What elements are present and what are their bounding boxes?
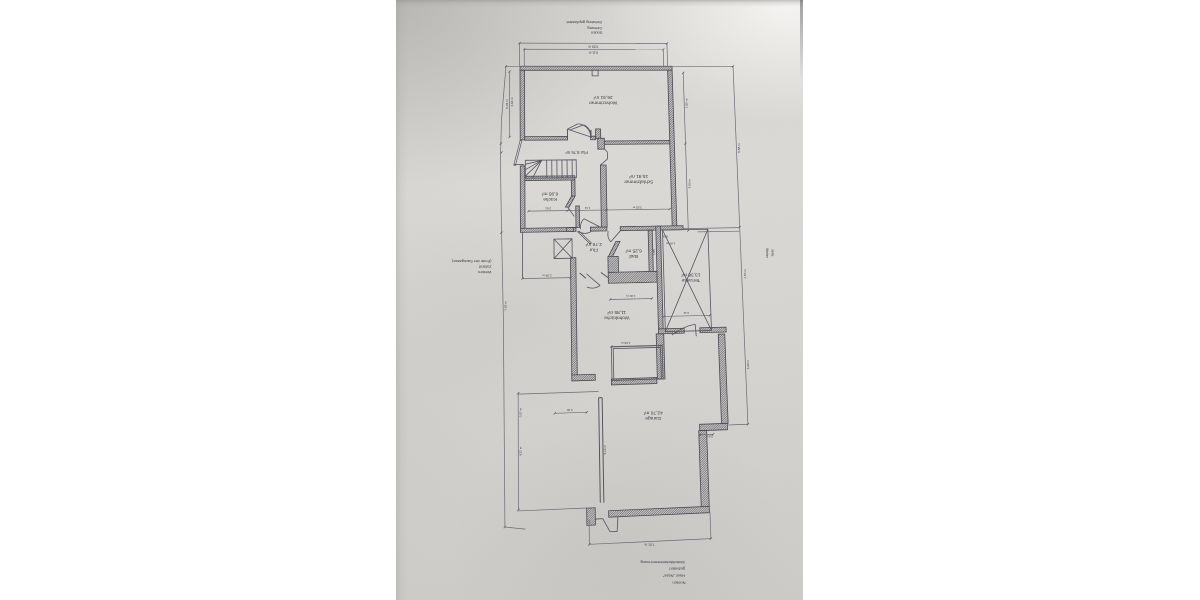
svg-text:4,53 m: 4,53 m bbox=[687, 179, 691, 189]
svg-text:4,22 m: 4,22 m bbox=[518, 446, 522, 456]
svg-text:Schlafzimmer: Schlafzimmer bbox=[624, 179, 654, 185]
svg-text:0,36: 0,36 bbox=[662, 235, 668, 239]
svg-text:3,92 m: 3,92 m bbox=[632, 205, 642, 209]
svg-text:Westen: Westen bbox=[478, 270, 492, 275]
svg-text:6,95 m²: 6,95 m² bbox=[541, 191, 558, 197]
svg-text:26,91 m²: 26,91 m² bbox=[593, 94, 613, 100]
svg-text:Terrasse: Terrasse bbox=[681, 277, 700, 283]
svg-text:Süden: Süden bbox=[591, 31, 603, 36]
svg-text:3,99 m: 3,99 m bbox=[746, 359, 750, 369]
svg-text:Gehweg: Gehweg bbox=[587, 26, 602, 31]
svg-text:Bad: Bad bbox=[629, 253, 638, 259]
svg-text:3,66 m: 3,66 m bbox=[510, 97, 514, 107]
svg-text:42,76 m²: 42,76 m² bbox=[643, 410, 663, 416]
svg-text:9,11 m: 9,11 m bbox=[588, 50, 598, 54]
svg-text:Gehsteig gepflastert: Gehsteig gepflastert bbox=[566, 20, 603, 25]
svg-text:0,57 m: 0,57 m bbox=[519, 407, 523, 417]
svg-text:Zufahrt: Zufahrt bbox=[478, 265, 492, 270]
svg-text:11,85 m²: 11,85 m² bbox=[607, 309, 626, 315]
svg-text:9,59 m: 9,59 m bbox=[588, 45, 598, 49]
svg-text:2,38 m: 2,38 m bbox=[542, 273, 552, 277]
svg-text:Wohnflächenberechnung: Wohnflächenberechnung bbox=[640, 560, 684, 565]
svg-text:1,87 m: 1,87 m bbox=[666, 241, 676, 245]
svg-text:6,25 m²: 6,25 m² bbox=[625, 248, 642, 254]
svg-text:1,50 m: 1,50 m bbox=[685, 98, 689, 108]
svg-text:1,50 m: 1,50 m bbox=[743, 269, 747, 279]
svg-text:Garage: Garage bbox=[645, 415, 661, 421]
svg-text:seite: seite bbox=[770, 249, 774, 256]
svg-text:geändert: geändert bbox=[668, 566, 685, 571]
svg-text:2,76 m²: 2,76 m² bbox=[585, 241, 602, 247]
svg-text:2,61: 2,61 bbox=[545, 207, 551, 211]
svg-text:5,10 m: 5,10 m bbox=[603, 445, 607, 455]
svg-text:Wohnzimmer: Wohnzimmer bbox=[588, 99, 617, 105]
svg-text:1,85: 1,85 bbox=[652, 249, 656, 255]
svg-text:13,38 m²: 13,38 m² bbox=[681, 272, 701, 278]
svg-text:5,58 m: 5,58 m bbox=[737, 143, 741, 153]
svg-text:Norden: Norden bbox=[672, 580, 685, 585]
svg-text:Flur: Flur bbox=[589, 247, 598, 253]
svg-text:7,92 m: 7,92 m bbox=[504, 301, 508, 311]
svg-text:1,96 m: 1,96 m bbox=[621, 341, 631, 345]
svg-text:Haus „Nase“: Haus „Nase“ bbox=[662, 574, 685, 579]
svg-text:4,11: 4,11 bbox=[683, 311, 689, 315]
svg-text:0,99: 0,99 bbox=[567, 408, 573, 412]
svg-text:Wohnküche: Wohnküche bbox=[604, 314, 630, 320]
svg-text:1,32 m: 1,32 m bbox=[626, 294, 636, 298]
svg-text:5,05 m: 5,05 m bbox=[505, 99, 509, 109]
svg-text:7,01 m: 7,01 m bbox=[644, 543, 654, 547]
svg-text:Küche: Küche bbox=[543, 196, 557, 202]
svg-text:15,81 m²: 15,81 m² bbox=[629, 173, 649, 179]
svg-text:Wetter: Wetter bbox=[765, 248, 769, 259]
svg-text:(Ende der Sackgasse): (Ende der Sackgasse) bbox=[451, 259, 491, 264]
svg-text:Flur 8,76 m²: Flur 8,76 m² bbox=[565, 150, 588, 155]
svg-text:1,11: 1,11 bbox=[584, 206, 590, 210]
